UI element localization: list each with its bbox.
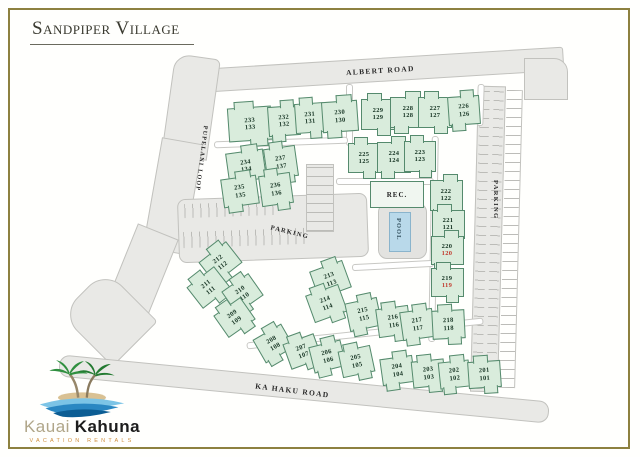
unit-number-lower: 137 — [276, 161, 288, 170]
unit-number-lower: 130 — [335, 116, 346, 124]
unit-number-lower: 118 — [443, 324, 454, 332]
building-225: 225125 — [348, 143, 380, 173]
unit-number-upper: 226 — [458, 102, 469, 110]
parking-label-east: PARKING — [492, 180, 499, 219]
unit-number-lower: 123 — [415, 156, 426, 163]
building-202: 202102 — [437, 359, 471, 389]
building-233: 233133 — [227, 106, 273, 143]
unit-number-lower: 122 — [441, 195, 452, 202]
brand-name: Kauai Kahuna — [16, 418, 148, 435]
unit-number-upper: 221 — [443, 217, 454, 224]
albert-road-corner — [524, 58, 568, 100]
unit-number-upper: 227 — [430, 105, 441, 112]
unit-number-lower: 105 — [351, 360, 363, 369]
unit-number-lower: 102 — [449, 373, 460, 381]
building-204: 204104 — [379, 354, 415, 385]
unit-number-lower: 127 — [430, 112, 441, 119]
building-218: 218118 — [431, 309, 465, 340]
building-223: 223123 — [404, 141, 436, 172]
unit-number-lower: 126 — [459, 110, 470, 118]
brand-second-word: Kahuna — [75, 417, 140, 436]
kauai-kahuna-logo: Kauai Kahuna Vacation Rentals — [16, 358, 148, 444]
unit-number-lower: 120 — [442, 250, 453, 257]
building-235: 235135 — [220, 174, 260, 208]
unit-number-upper: 224 — [389, 150, 400, 157]
driveway — [352, 260, 434, 271]
unit-number-lower: 125 — [359, 158, 370, 165]
brand-first-word: Kauai — [24, 417, 70, 436]
building-219: 219119 — [431, 268, 464, 297]
unit-number-upper: 222 — [441, 188, 452, 195]
unit-number-upper: 229 — [373, 107, 384, 114]
building-201: 201101 — [467, 359, 502, 388]
brand-tagline: Vacation Rentals — [16, 438, 148, 444]
unit-number-upper: 225 — [359, 151, 370, 158]
rec-label: REC. — [387, 191, 408, 199]
sandpiper-village-site-map: Sandpiper Village ALBERT ROAD PUPELANI L… — [0, 0, 640, 457]
unit-number-upper: 228 — [403, 105, 414, 112]
page-title: Sandpiper Village — [30, 18, 194, 45]
building-220: 220120 — [431, 236, 464, 265]
unit-number-upper: 218 — [442, 316, 453, 324]
building-205: 205105 — [337, 344, 375, 377]
unit-number-lower: 131 — [305, 118, 316, 126]
building-236: 236136 — [258, 171, 294, 206]
unit-number-upper: 220 — [442, 243, 453, 250]
unit-number-lower: 119 — [442, 282, 452, 289]
palm-island-icon — [34, 358, 130, 418]
unit-number-lower: 136 — [271, 188, 283, 197]
unit-number-lower: 129 — [373, 114, 384, 121]
unit-number-lower: 124 — [389, 157, 400, 164]
unit-number-lower: 132 — [279, 121, 290, 129]
pool-label: POOL — [395, 218, 402, 240]
unit-number-lower: 104 — [392, 369, 404, 378]
unit-number-lower: 135 — [235, 190, 247, 199]
unit-number-lower: 101 — [479, 374, 490, 382]
unit-number-lower: 128 — [403, 112, 414, 119]
unit-number-upper: 230 — [334, 108, 345, 116]
unit-number-upper: 201 — [478, 366, 489, 374]
unit-number-lower: 117 — [412, 323, 423, 332]
unit-number-upper: 219 — [442, 275, 453, 282]
unit-number-lower: 115 — [358, 313, 370, 322]
building-226: 226126 — [447, 94, 481, 125]
rec-building: REC. — [370, 181, 424, 208]
mid-parking-row — [306, 164, 334, 232]
unit-number-lower: 133 — [245, 124, 256, 132]
unit-number-lower: 116 — [388, 320, 399, 329]
unit-number-lower: 103 — [423, 372, 434, 380]
unit-number-upper: 223 — [415, 149, 426, 156]
building-217: 217117 — [399, 307, 436, 340]
building-230: 230130 — [321, 99, 359, 132]
